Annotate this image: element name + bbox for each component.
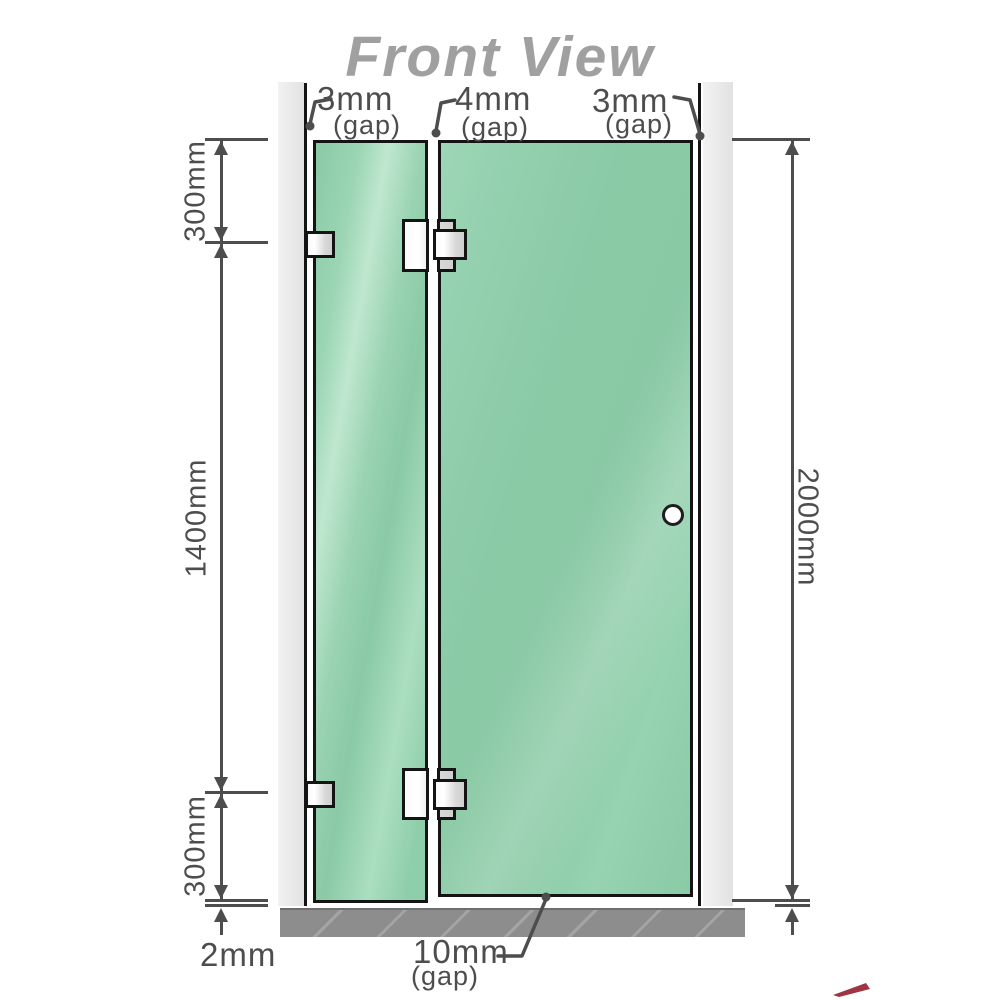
gap-label-top-left-caption: (gap)	[333, 110, 401, 141]
arrow-icon	[214, 794, 228, 808]
arrow-icon	[214, 141, 228, 155]
right-wall-edge-line	[698, 83, 701, 906]
dim-line-1400	[220, 244, 223, 791]
arrow-icon	[785, 885, 799, 899]
arrow-icon	[214, 244, 228, 258]
dim-line-300-top	[220, 141, 223, 241]
watermark-red-swoosh	[833, 983, 870, 997]
arrow-icon	[785, 908, 799, 922]
dim-tick	[775, 904, 810, 907]
dim-label-2000: 2000mm	[791, 468, 824, 587]
door-glass-panel	[438, 140, 693, 897]
gap-label-top-middle-caption: (gap)	[461, 112, 529, 143]
dim-label-300-top: 300mm	[180, 140, 213, 242]
dim-tick	[732, 899, 810, 902]
dim-tick	[205, 899, 268, 902]
gap-label-bottom-caption: (gap)	[411, 961, 479, 992]
leader-dot	[432, 129, 441, 138]
floor	[280, 908, 745, 937]
dim-line-floor-gap-right	[791, 922, 794, 935]
top-wall-bracket	[305, 231, 335, 258]
left-wall	[278, 82, 304, 906]
door-knob	[662, 504, 684, 526]
right-wall	[703, 82, 733, 906]
dim-label-300-bottom: 300mm	[180, 795, 213, 897]
leader-top-right	[674, 97, 700, 134]
dim-line-300-bottom	[220, 794, 223, 899]
arrow-icon	[785, 141, 799, 155]
arrow-icon	[214, 885, 228, 899]
top-hinge-door-plate	[433, 229, 467, 260]
bottom-wall-bracket	[305, 781, 335, 808]
arrow-icon	[214, 908, 228, 922]
arrow-icon	[214, 227, 228, 241]
bottom-hinge-door-plate	[433, 779, 467, 810]
front-view-diagram: Front View 300mm 1400mm 300mm 2mm 200	[0, 0, 1000, 1000]
dim-label-2mm: 2mm	[200, 936, 276, 974]
dim-line-2mm	[220, 922, 223, 935]
arrow-icon	[214, 777, 228, 791]
dim-tick	[205, 904, 268, 907]
gap-label-top-right-caption: (gap)	[605, 109, 673, 140]
leader-top-middle	[436, 100, 455, 131]
dim-label-1400: 1400mm	[181, 459, 214, 578]
